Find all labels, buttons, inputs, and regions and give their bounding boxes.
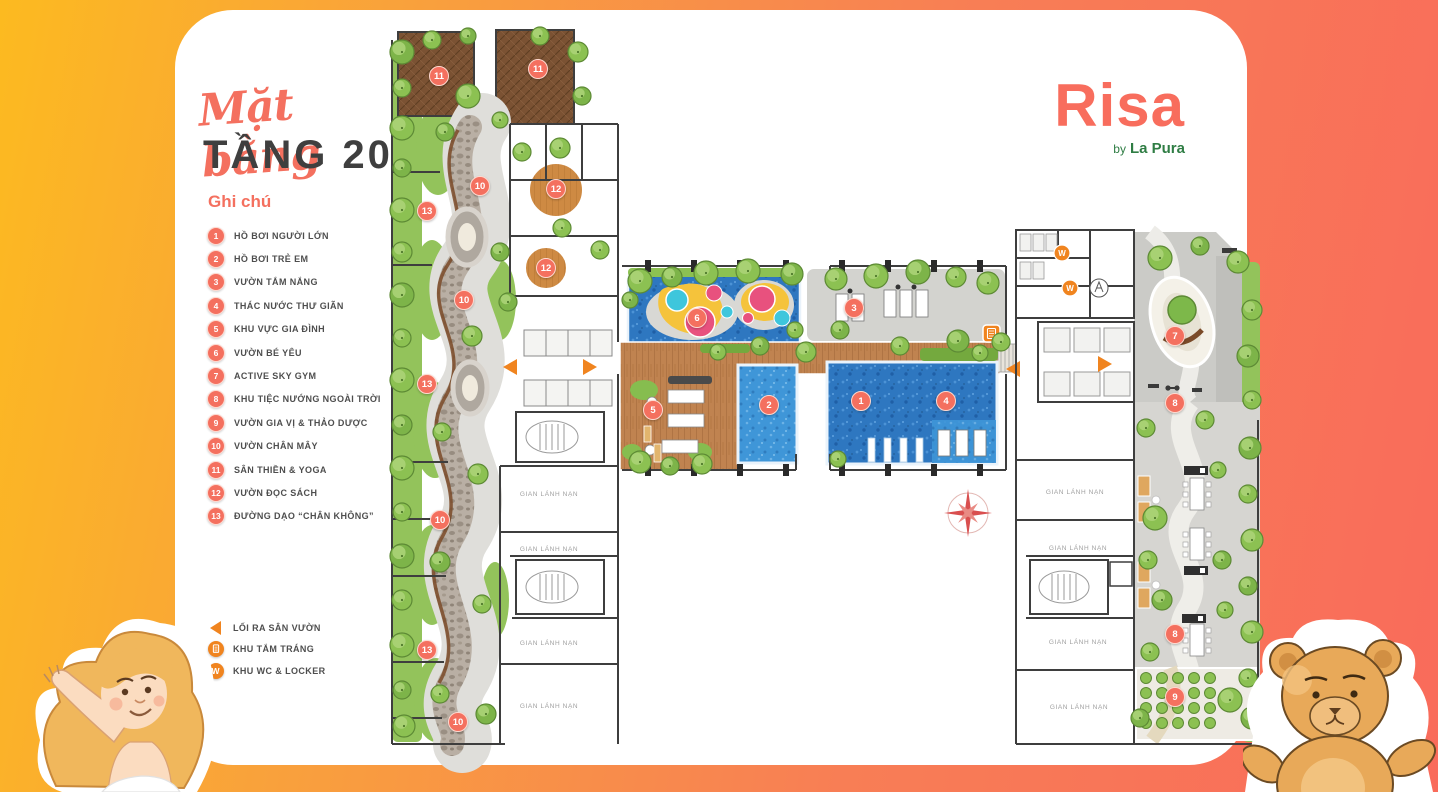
brand-logo: Risa byLa Pura — [995, 74, 1185, 157]
legend-item-7: 7ACTIVE SKY GYM — [207, 364, 381, 387]
plan-marker-8: 8 — [1165, 393, 1185, 413]
plan-marker-3: 3 — [844, 298, 864, 318]
legend-number-badge: 3 — [207, 273, 225, 291]
legend-label: ACTIVE SKY GYM — [234, 371, 316, 381]
svg-text:W: W — [1058, 249, 1066, 258]
plan-marker-8: 8 — [1165, 624, 1185, 644]
plan-marker-9: 9 — [1165, 687, 1185, 707]
svg-text:GIAN LÁNH NẠN: GIAN LÁNH NẠN — [520, 544, 578, 553]
plan-marker-13: 13 — [417, 640, 437, 660]
plan-marker-13: 13 — [417, 201, 437, 221]
brand-name: Risa — [995, 74, 1185, 138]
wc-icons-layer: WW — [1054, 245, 1078, 296]
plan-marker-11: 11 — [528, 59, 548, 79]
legend-number-badge: 5 — [207, 320, 225, 338]
plan-marker-12: 12 — [536, 258, 556, 278]
svg-text:GIAN LÁNH NẠN: GIAN LÁNH NẠN — [520, 701, 578, 710]
legend-item-6: 6VƯỜN BÉ YÊU — [207, 341, 381, 364]
exit-arrow-icon — [583, 359, 597, 375]
footer-legend-label: LỐI RA SÂN VƯỜN — [233, 623, 321, 633]
plan-marker-7: 7 — [1165, 326, 1185, 346]
legend-number-badge: 10 — [207, 437, 225, 455]
svg-text:GIAN LÁNH NẠN: GIAN LÁNH NẠN — [1049, 543, 1107, 552]
page-title: TẦNG 20 — [203, 133, 393, 178]
legend-number-badge: 8 — [207, 390, 225, 408]
svg-text:GIAN LÁNH NẠN: GIAN LÁNH NẠN — [1046, 487, 1104, 496]
legend-label: KHU VỰC GIA ĐÌNH — [234, 324, 325, 334]
legend-item-1: 1HỒ BƠI NGƯỜI LỚN — [207, 224, 381, 247]
legend-number-badge: 2 — [207, 250, 225, 268]
plan-marker-10: 10 — [454, 290, 474, 310]
legend-number-badge: 13 — [207, 507, 225, 525]
legend-item-5: 5KHU VỰC GIA ĐÌNH — [207, 318, 381, 341]
legend-number-badge: 1 — [207, 227, 225, 245]
central-amenities — [620, 260, 1016, 476]
plan-marker-6: 6 — [687, 308, 707, 328]
plan-marker-13: 13 — [417, 374, 437, 394]
plan-marker-10: 10 — [448, 712, 468, 732]
legend-item-11: 11SÂN THIỀN & YOGA — [207, 458, 381, 481]
plan-marker-10: 10 — [470, 176, 490, 196]
legend-label: THÁC NƯỚC THƯ GIÃN — [234, 301, 344, 311]
teddy-bear-illustration — [1243, 616, 1438, 792]
footer-legend-label: KHU TẮM TRÁNG — [233, 644, 314, 654]
legend-number-badge: 6 — [207, 344, 225, 362]
svg-text:GIAN LÁNH NẠN: GIAN LÁNH NẠN — [1049, 637, 1107, 646]
legend-label: HỒ BƠI TRẺ EM — [234, 254, 308, 264]
legend-item-9: 9VƯỜN GIA VỊ & THẢO DƯỢC — [207, 411, 381, 434]
legend-number-badge: 4 — [207, 297, 225, 315]
footer-legend-label: KHU WC & LOCKER — [233, 666, 326, 676]
legend-label: ĐƯỜNG DẠO “CHÂN KHÔNG” — [234, 511, 374, 521]
legend-number-badge: 12 — [207, 484, 225, 502]
legend-label: VƯỜN ĐỌC SÁCH — [234, 488, 317, 498]
legend-item-10: 10VƯỜN CHÂN MÂY — [207, 435, 381, 458]
right-wing — [1006, 230, 1260, 744]
poster: GIAN LÁNH NẠNGIAN LÁNH NẠNGIAN LÁNH NẠNG… — [0, 0, 1438, 792]
girl-illustration — [22, 590, 227, 792]
plan-marker-1: 1 — [851, 391, 871, 411]
legend-label: VƯỜN GIA VỊ & THẢO DƯỢC — [234, 418, 368, 428]
legend-label: VƯỜN BÉ YÊU — [234, 348, 302, 358]
plan-marker-10: 10 — [430, 510, 450, 530]
compass-rose — [944, 489, 992, 537]
svg-text:GIAN LÁNH NẠN: GIAN LÁNH NẠN — [520, 489, 578, 498]
legend-label: SÂN THIỀN & YOGA — [234, 465, 327, 475]
plan-marker-5: 5 — [643, 400, 663, 420]
legend-item-13: 13ĐƯỜNG DẠO “CHÂN KHÔNG” — [207, 505, 381, 528]
legend-label: KHU TIỆC NƯỚNG NGOÀI TRỜI — [234, 394, 381, 404]
legend-label: VƯỜN CHÂN MÂY — [234, 441, 318, 451]
legend-item-4: 4THÁC NƯỚC THƯ GIÃN — [207, 294, 381, 317]
legend-item-3: 3VƯỜN TẮM NẮNG — [207, 271, 381, 294]
brand-byline: byLa Pura — [995, 140, 1185, 157]
exit-arrow-icon — [503, 359, 517, 375]
svg-text:GIAN LÁNH NẠN: GIAN LÁNH NẠN — [1050, 702, 1108, 711]
legend-number-badge: 7 — [207, 367, 225, 385]
plan-marker-2: 2 — [759, 395, 779, 415]
legend-item-8: 8KHU TIỆC NƯỚNG NGOÀI TRỜI — [207, 388, 381, 411]
legend: 1HỒ BƠI NGƯỜI LỚN2HỒ BƠI TRẺ EM3VƯỜN TẮM… — [207, 224, 381, 528]
legend-number-badge: 11 — [207, 461, 225, 479]
plan-marker-12: 12 — [546, 179, 566, 199]
legend-label: VƯỜN TẮM NẮNG — [234, 277, 318, 287]
legend-heading: Ghi chú — [208, 192, 271, 212]
legend-item-2: 2HỒ BƠI TRẺ EM — [207, 247, 381, 270]
svg-text:W: W — [1066, 284, 1074, 293]
plan-marker-11: 11 — [429, 66, 449, 86]
legend-number-badge: 9 — [207, 414, 225, 432]
legend-item-12: 12VƯỜN ĐỌC SÁCH — [207, 481, 381, 504]
legend-label: HỒ BƠI NGƯỜI LỚN — [234, 231, 329, 241]
svg-text:GIAN LÁNH NẠN: GIAN LÁNH NẠN — [520, 638, 578, 647]
plan-marker-4: 4 — [936, 391, 956, 411]
